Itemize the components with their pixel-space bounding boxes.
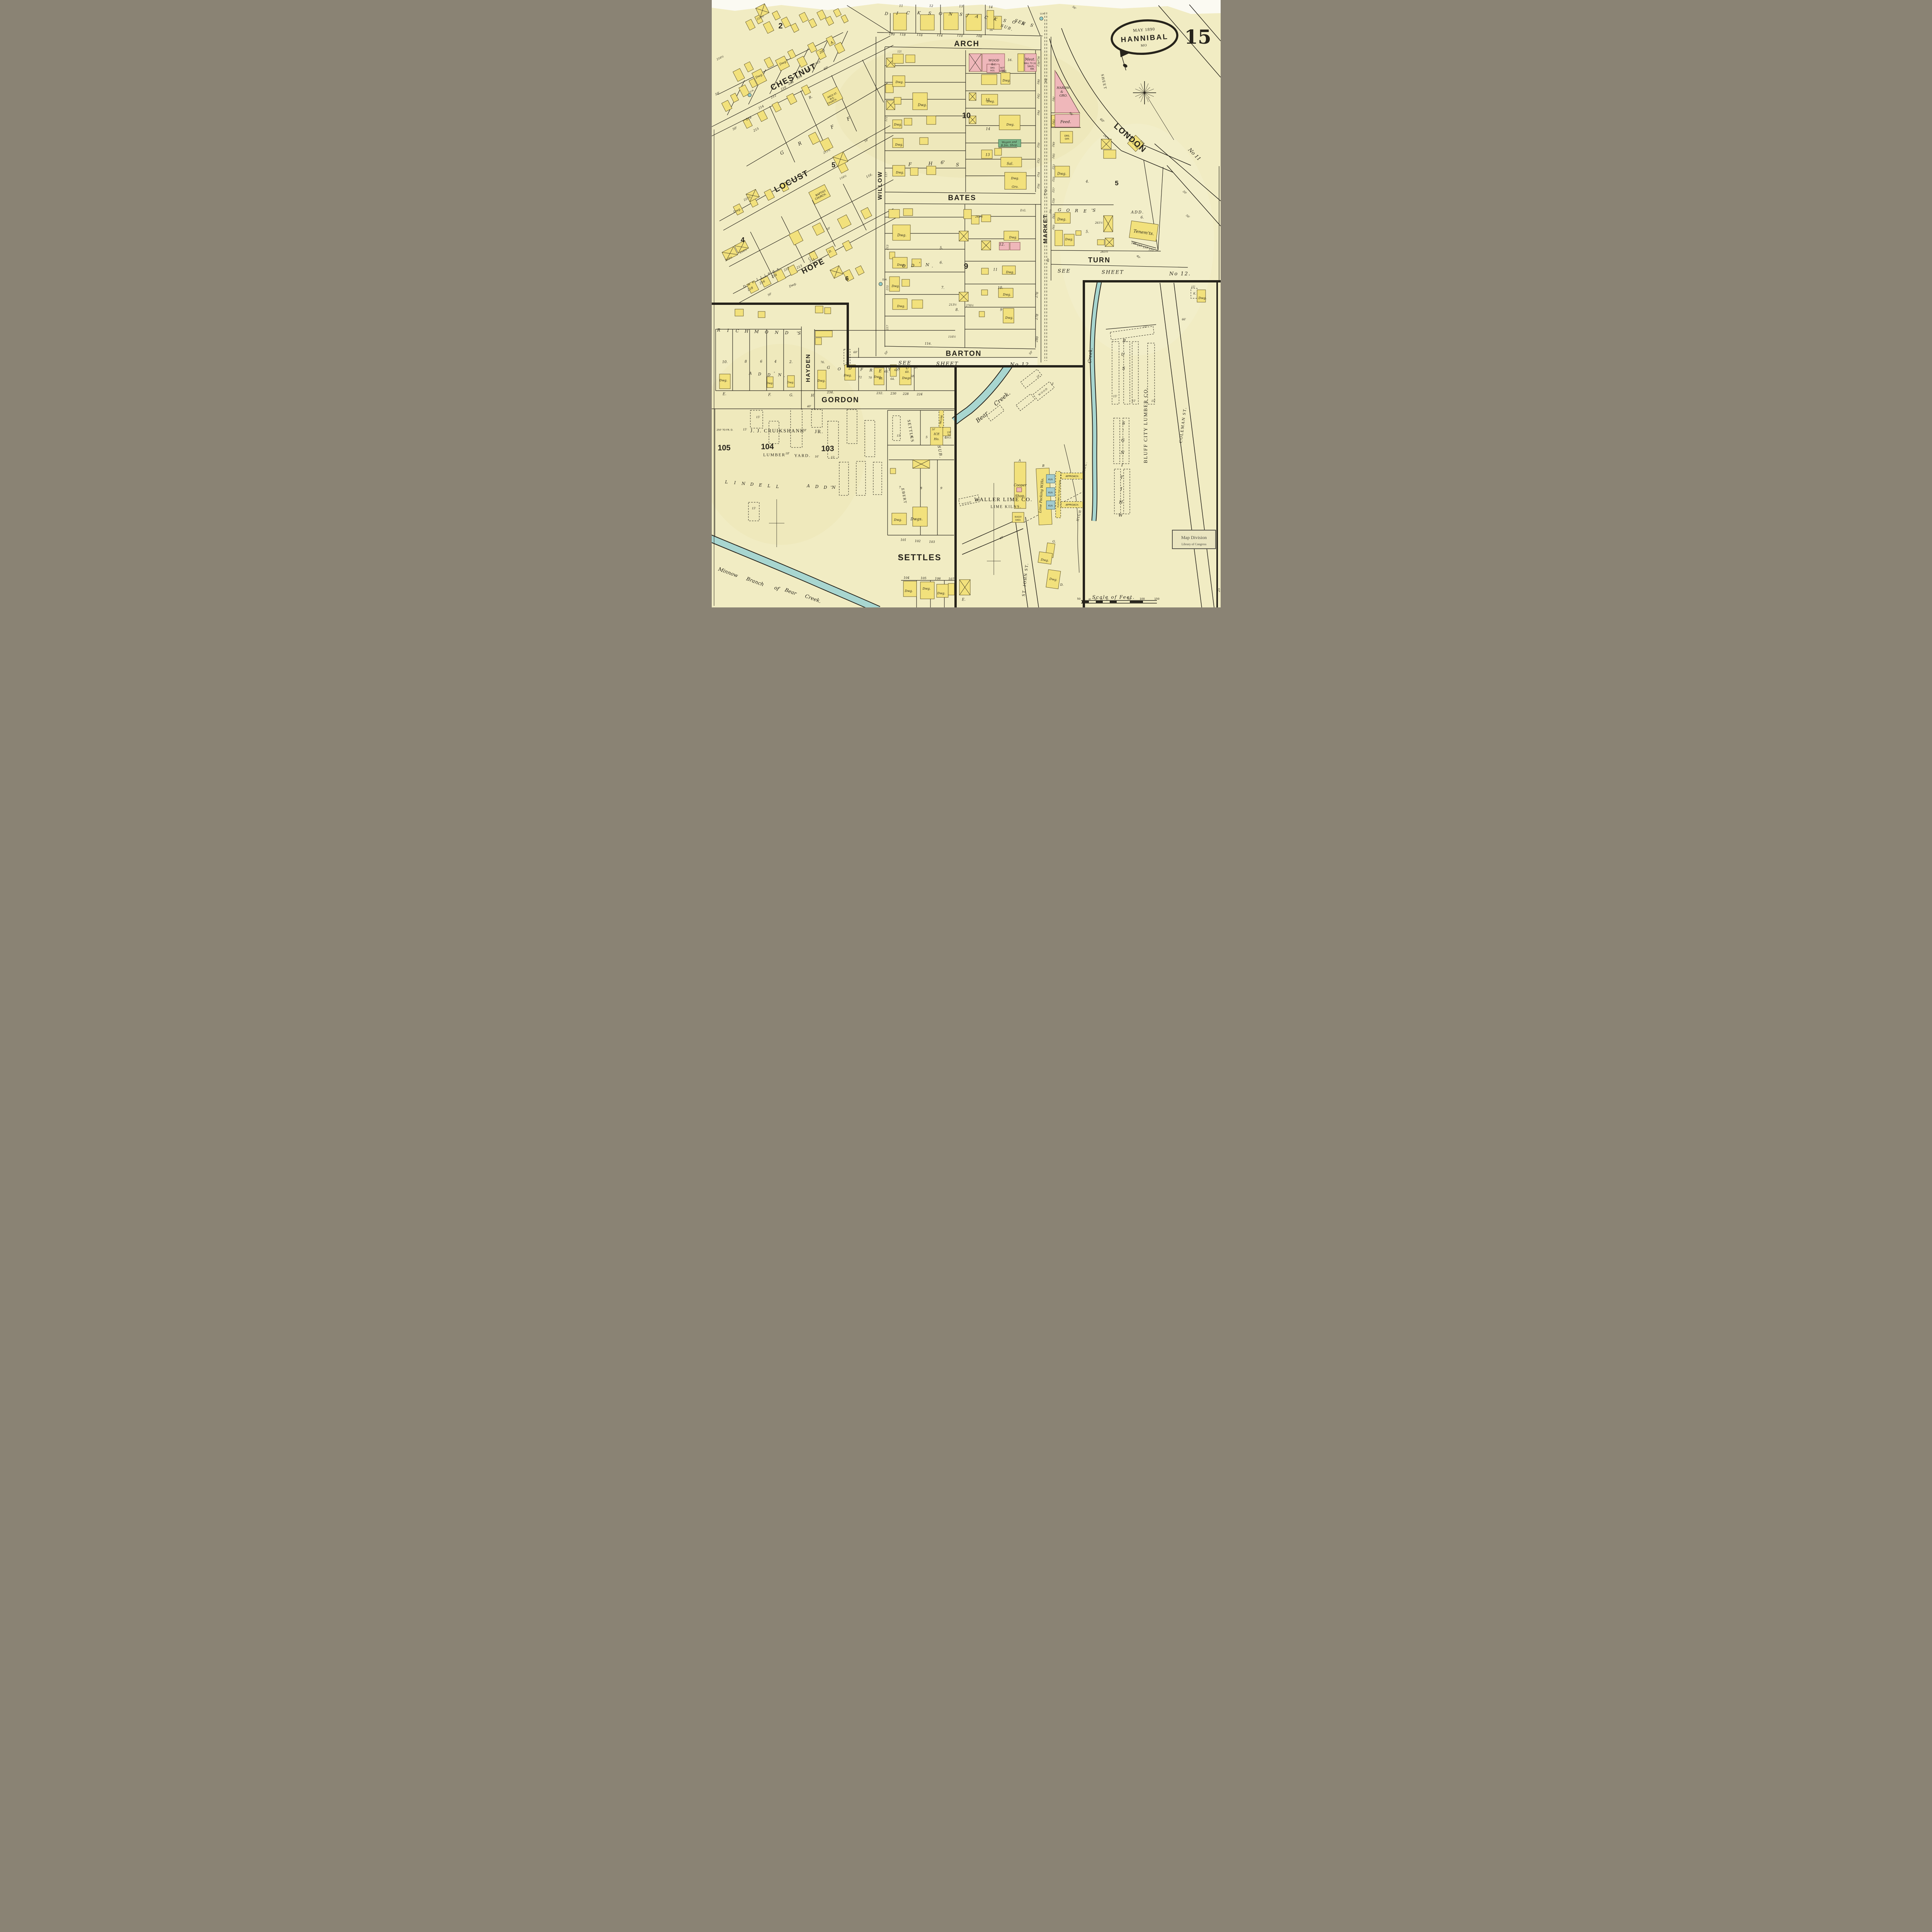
- map-label: SMO.: [990, 67, 995, 70]
- building: [999, 115, 1020, 130]
- map-label: 111: [884, 116, 888, 122]
- map-label: 15': [830, 456, 835, 459]
- map-label: Dwg.: [1005, 316, 1013, 320]
- map-label: WOOD: [988, 59, 999, 62]
- building: [979, 311, 985, 317]
- map-label: OFF.: [1065, 138, 1070, 141]
- map-label: Dwg.: [1057, 218, 1066, 222]
- map-label: I: [1120, 486, 1122, 492]
- map-label: 262½: [975, 215, 983, 218]
- building: [1104, 150, 1116, 158]
- building: [735, 309, 743, 316]
- map-label: G: [827, 366, 830, 370]
- map-label: Meat.: [1024, 58, 1035, 62]
- library-stamp: Map Division Library of Congress: [1172, 530, 1216, 549]
- map-label: E.: [961, 598, 966, 602]
- map-label: HAYDEN: [804, 354, 811, 382]
- building: [981, 75, 997, 85]
- map-label: No 12.: [1168, 271, 1190, 277]
- map-label: 2.: [789, 361, 793, 364]
- map-label: GRO.: [1059, 94, 1067, 97]
- map-label: HARDW.: [1056, 86, 1070, 90]
- map-label: S: [1122, 366, 1125, 371]
- building: [981, 241, 991, 250]
- building: [912, 300, 923, 308]
- building: [1097, 240, 1104, 245]
- map-label: B.: [913, 366, 918, 370]
- map-label: 9: [940, 486, 942, 490]
- building: [1001, 73, 1010, 84]
- map-label: 18': [785, 452, 789, 455]
- map-label: 8.: [955, 308, 959, 312]
- map-label: 261½: [1094, 221, 1102, 224]
- map-label: 2: [778, 22, 782, 30]
- map-label: 11: [899, 4, 903, 8]
- map-label: Dwg.: [1006, 123, 1014, 126]
- map-label: 224: [916, 393, 922, 396]
- map-label: SHEET: [1102, 270, 1124, 276]
- map-label: 10: [962, 111, 970, 120]
- map-label: N: [1120, 450, 1124, 455]
- map-label: 40': [806, 405, 811, 408]
- building: [969, 93, 976, 100]
- map-label: &: [1060, 90, 1063, 94]
- map-label: 6: [760, 360, 762, 364]
- building: [1017, 488, 1022, 492]
- map-label: G: [1058, 207, 1061, 213]
- building: [825, 308, 831, 314]
- map-label: SHED.: [1015, 519, 1021, 522]
- map-label: 16': [932, 429, 935, 431]
- map-label: I: [1121, 463, 1123, 468]
- map-label: U: [905, 366, 909, 371]
- map-label: ADD.: [1130, 211, 1144, 215]
- building: [927, 116, 936, 124]
- building: [886, 100, 895, 110]
- building: [904, 118, 912, 125]
- map-label: LUMBER: [763, 453, 786, 457]
- map-label: 6.: [939, 261, 943, 265]
- map-label: BUGGY: [1015, 516, 1022, 519]
- map-label: D: [910, 263, 914, 268]
- map-label: ARCH: [954, 39, 980, 48]
- map-label: R: [1074, 208, 1078, 213]
- building: [966, 14, 981, 31]
- map-label: W: [1118, 513, 1123, 518]
- map-label: 106: [935, 577, 940, 580]
- building: [937, 584, 948, 597]
- building: [981, 268, 988, 274]
- building: [893, 225, 910, 240]
- map-label: G.: [1052, 540, 1056, 543]
- map-label: 213½: [948, 303, 956, 306]
- map-label: 15': [756, 416, 760, 419]
- map-label: Dwg.: [896, 304, 905, 308]
- map-label: N: [741, 481, 745, 486]
- map-label: 40: [1088, 599, 1090, 601]
- building: [893, 13, 906, 30]
- map-label: 104: [761, 442, 774, 451]
- map-label: MARKET: [1042, 214, 1048, 243]
- map-label: Dwg.: [896, 263, 905, 267]
- map-label: SEE: [898, 361, 912, 366]
- map-label: 103: [821, 444, 834, 453]
- map-label: 15': [1131, 400, 1136, 403]
- map-label: WILLOW: [876, 171, 883, 200]
- map-label: LIME KILNS.: [990, 505, 1022, 509]
- map-label: 15': [752, 507, 756, 510]
- map-label: 103: [929, 540, 935, 544]
- map-label: BLUFF CITY LUMBER CO.: [1142, 387, 1148, 463]
- map-label: 'S: [1091, 208, 1095, 213]
- map-label: O: [1066, 208, 1070, 213]
- map-label: Dwg.: [873, 375, 882, 379]
- map-label: E.: [722, 393, 726, 396]
- map-label: D: [823, 485, 827, 490]
- map-label: R: [716, 328, 720, 333]
- map-label: Dwg.: [1002, 79, 1010, 82]
- map-label: HOS.: [990, 70, 995, 72]
- map-label: 213: [886, 244, 889, 250]
- map-label: J. J. CRUIKSHANK: [750, 428, 804, 434]
- map-label: C: [735, 328, 739, 333]
- map-label: SEE: [1058, 269, 1071, 274]
- map-label: KILN.: [1048, 492, 1053, 494]
- map-label: Dwg.: [1010, 177, 1019, 180]
- building: [889, 277, 900, 291]
- map-label: S: [1122, 421, 1125, 426]
- building: [1101, 139, 1111, 149]
- map-label: K.: [1193, 292, 1196, 295]
- map-label: 62.: [894, 369, 898, 372]
- map-label: 14: [986, 128, 990, 131]
- map-label: 16': [989, 29, 993, 32]
- map-label: DRS.: [1064, 135, 1070, 138]
- map-label: 101: [900, 538, 906, 542]
- map-label: 15': [1113, 395, 1117, 398]
- map-label: H: [744, 329, 748, 334]
- building: [815, 306, 823, 313]
- map-label: Dwg.: [904, 589, 913, 593]
- map-label: Gro.: [1012, 185, 1018, 189]
- building: [920, 138, 928, 145]
- map-label: 5: [1115, 179, 1118, 187]
- map-label: Dwg.: [895, 143, 903, 146]
- map-label: 25: [1217, 588, 1221, 592]
- map-label: Dwg.: [891, 284, 900, 288]
- map-label: 6: [911, 435, 913, 438]
- map-label: Dwg.: [922, 587, 930, 590]
- map-label: H.: [810, 394, 815, 398]
- map-label: B: [1042, 464, 1044, 468]
- map-label: F: [908, 162, 912, 167]
- map-label: 105: [718, 444, 730, 452]
- map-label: 10.: [997, 286, 1003, 290]
- map-label: Dwg.: [786, 381, 794, 384]
- map-label: RM.: [1030, 68, 1034, 71]
- map-label: 64.: [890, 378, 895, 381]
- map-label: 230: [890, 392, 896, 395]
- map-label: SAUS.,: [1027, 65, 1035, 68]
- map-label: GORDON: [821, 396, 859, 404]
- building: [920, 582, 934, 599]
- map-label: 4: [774, 360, 777, 364]
- map-label: D.: [1060, 583, 1063, 587]
- map-label: N: [925, 262, 929, 267]
- map-label: 116.: [925, 342, 932, 345]
- map-label: F: [860, 368, 863, 372]
- map-label: 5: [925, 435, 927, 439]
- building: [927, 166, 936, 175]
- map-label: 16.: [1007, 58, 1012, 62]
- map-label: 7.: [941, 286, 944, 290]
- map-label: KILN.: [1048, 479, 1053, 481]
- map-label: ': [919, 261, 920, 266]
- map-label: L: [776, 484, 779, 489]
- map-label: 'S: [796, 331, 801, 336]
- map-label: O: [938, 11, 942, 16]
- map-label: Dwg.: [765, 382, 773, 385]
- map-label: 130': [947, 432, 951, 434]
- building: [913, 507, 927, 526]
- building: [815, 331, 832, 337]
- map-label: E: [1083, 209, 1086, 214]
- map-label: D: [757, 372, 761, 377]
- map-label: Dwg.: [817, 379, 825, 383]
- map-label: 76.: [820, 361, 825, 364]
- map-label: 14: [988, 5, 992, 9]
- map-label: A: [1018, 459, 1021, 462]
- map-label: TO.: [947, 434, 951, 437]
- map-label: FR.D.: [946, 437, 952, 439]
- map-label: 12: [929, 4, 933, 8]
- building: [1076, 231, 1081, 235]
- building: [959, 231, 968, 241]
- building: [902, 279, 910, 286]
- building: [1038, 552, 1053, 564]
- map-label: 15': [1151, 400, 1155, 403]
- map-label: 70: [868, 376, 872, 379]
- map-label: O: [765, 330, 768, 335]
- water-hydrant-icon: [1039, 17, 1043, 20]
- stamp-line-1: Map Division: [1181, 535, 1206, 540]
- map-label: 5.: [1085, 230, 1089, 234]
- map-label: 215: [886, 285, 889, 291]
- map-label: U: [1121, 352, 1125, 357]
- map-label: No 12.: [1009, 362, 1031, 368]
- map-label: H: [928, 161, 932, 167]
- map-label: SHEET: [936, 361, 959, 367]
- map-label: Dwg.: [895, 171, 904, 174]
- map-label: Dwg.: [1065, 238, 1073, 241]
- building: [758, 311, 765, 318]
- building: [913, 460, 930, 468]
- map-label: Dwg.: [843, 374, 852, 377]
- map-label: 66.: [884, 370, 888, 373]
- water-hydrant-icon: [879, 282, 882, 286]
- map-label: 6: [845, 276, 849, 282]
- map-label: Dwg.: [893, 123, 902, 126]
- building: [903, 209, 913, 216]
- map-label: YARD.: [794, 454, 811, 458]
- map-label: ': [774, 372, 775, 376]
- building: [910, 168, 918, 175]
- map-label: 217: [886, 325, 889, 331]
- map-label: 74.: [845, 362, 850, 366]
- map-label: D: [884, 11, 888, 16]
- map-label: 105: [920, 577, 926, 580]
- map-label: 15': [1191, 286, 1195, 289]
- map-label: 50: [1077, 597, 1080, 600]
- map-label: 107: [948, 577, 954, 581]
- map-label: Dwg.: [1198, 296, 1206, 300]
- map-label: 8: [745, 360, 747, 364]
- map-label: L: [724, 480, 728, 485]
- map-label: 150: [1154, 597, 1159, 600]
- sanborn-map-sheet: MAY 1890 HANNIBAL MO 15 Map Division Lib…: [712, 0, 1221, 607]
- building: [995, 148, 1002, 155]
- map-label: 30: [1094, 599, 1096, 601]
- map-label: Dwgs.: [901, 376, 912, 380]
- building: [1055, 230, 1063, 246]
- map-label: &c.: [991, 63, 996, 66]
- map-canvas: MAY 1890 HANNIBAL MO 15 Map Division Lib…: [712, 0, 1221, 607]
- map-label: L: [767, 483, 770, 488]
- map-label: 15': [896, 434, 901, 437]
- map-label: E: [878, 369, 882, 374]
- building: [964, 209, 971, 219]
- map-label: .: [784, 374, 785, 378]
- map-label: 9: [1000, 308, 1002, 312]
- map-label: 15': [743, 428, 747, 431]
- map-label: 234.: [827, 391, 834, 394]
- map-label: 50: [1127, 597, 1131, 600]
- map-label: Cooper: [1014, 484, 1027, 488]
- map-label: USED: [1000, 70, 1005, 72]
- map-label: ': [1122, 429, 1124, 434]
- map-label: Dwg.: [719, 379, 727, 382]
- map-label: Dwg.: [895, 80, 903, 84]
- building: [903, 581, 917, 597]
- map-label: G.: [789, 394, 793, 398]
- map-label: D: [848, 367, 851, 371]
- map-label: 11: [993, 268, 997, 272]
- map-label: 6.: [1140, 216, 1144, 220]
- map-label: SETTLES: [898, 553, 941, 562]
- map-label: 13: [985, 153, 990, 157]
- map-label: NOT: [1000, 67, 1005, 70]
- map-label: D.H.: [882, 279, 887, 281]
- building: [886, 84, 893, 93]
- map-label: 121: [897, 51, 901, 53]
- building: [1197, 290, 1206, 302]
- map-label: Dwg.: [1002, 293, 1011, 296]
- map-label: Dwg.: [1057, 172, 1066, 176]
- map-label: 228: [902, 392, 908, 396]
- map-label: N: [774, 330, 778, 335]
- building: [1018, 54, 1024, 71]
- map-label: Dwg.: [937, 592, 945, 595]
- map-label: E: [758, 483, 762, 488]
- building: [1003, 308, 1014, 323]
- map-label: D: [784, 330, 788, 335]
- building: [906, 55, 915, 63]
- map-label: 276½: [965, 304, 973, 307]
- map-label: 20: [1100, 599, 1102, 601]
- map-label: A: [806, 483, 810, 488]
- map-label: 117: [884, 172, 888, 177]
- map-label: 102: [915, 539, 920, 543]
- map-label: G: [1121, 438, 1124, 443]
- map-label: 60': [853, 351, 857, 354]
- map-label: 10.: [722, 361, 727, 364]
- building: [948, 583, 954, 595]
- building: [889, 209, 900, 218]
- building: [987, 10, 994, 29]
- map-label: Dwg.: [1009, 236, 1017, 239]
- map-label: 15': [1143, 325, 1147, 328]
- map-label: Feed.: [1060, 120, 1071, 124]
- map-label: R: [869, 369, 872, 373]
- map-label: N: [948, 11, 953, 17]
- map-label: 12.: [999, 243, 1004, 247]
- map-label: D: [750, 482, 753, 487]
- map-label: 16': [815, 455, 819, 458]
- map-label: Sal.: [1007, 162, 1013, 166]
- map-label: 60.: [905, 371, 909, 374]
- map-label: U.H.: [1040, 13, 1045, 15]
- map-label: N: [777, 373, 782, 378]
- map-label: 265½: [1100, 250, 1108, 253]
- building: [1104, 216, 1113, 232]
- map-label: WALL TO 2d.: [1024, 63, 1036, 65]
- building: [890, 468, 896, 474]
- map-label: 18': [802, 429, 806, 432]
- building: [1105, 238, 1114, 247]
- map-label: 66': [1182, 318, 1186, 321]
- map-label: Dwg.: [897, 234, 906, 238]
- building: [894, 97, 901, 104]
- map-label: Ho.: [933, 437, 939, 441]
- water-hydrant-icon: [748, 94, 751, 97]
- map-label: .: [932, 264, 933, 269]
- map-state: MO: [1140, 43, 1147, 48]
- map-label: KILN.: [1048, 505, 1053, 507]
- map-label: APPROACH.: [1065, 504, 1079, 507]
- map-label: WALLER LIME CO.: [974, 497, 1032, 503]
- map-label: 72: [858, 376, 862, 379]
- map-label: ICE: [933, 432, 939, 436]
- map-label: 8: [920, 486, 922, 490]
- map-label: BARTON: [946, 350, 981, 358]
- building: [893, 54, 903, 63]
- map-label: 'N: [830, 485, 835, 490]
- building: [1010, 242, 1020, 250]
- map-label: 13: [959, 5, 963, 8]
- building: [959, 580, 970, 595]
- map-label: 4.: [1085, 180, 1089, 184]
- map-label: .: [838, 486, 840, 491]
- map-label: 250' TO FR. D.: [716, 429, 733, 432]
- map-label: 116½: [948, 335, 956, 338]
- map-label: 104: [903, 576, 909, 580]
- map-label: 5: [831, 161, 835, 169]
- map-label: APPROACH.: [1065, 475, 1079, 478]
- map-label: 5.: [939, 247, 943, 250]
- map-label: B.: [1122, 338, 1127, 343]
- map-label: H: [1119, 500, 1123, 505]
- map-label: O: [837, 367, 840, 372]
